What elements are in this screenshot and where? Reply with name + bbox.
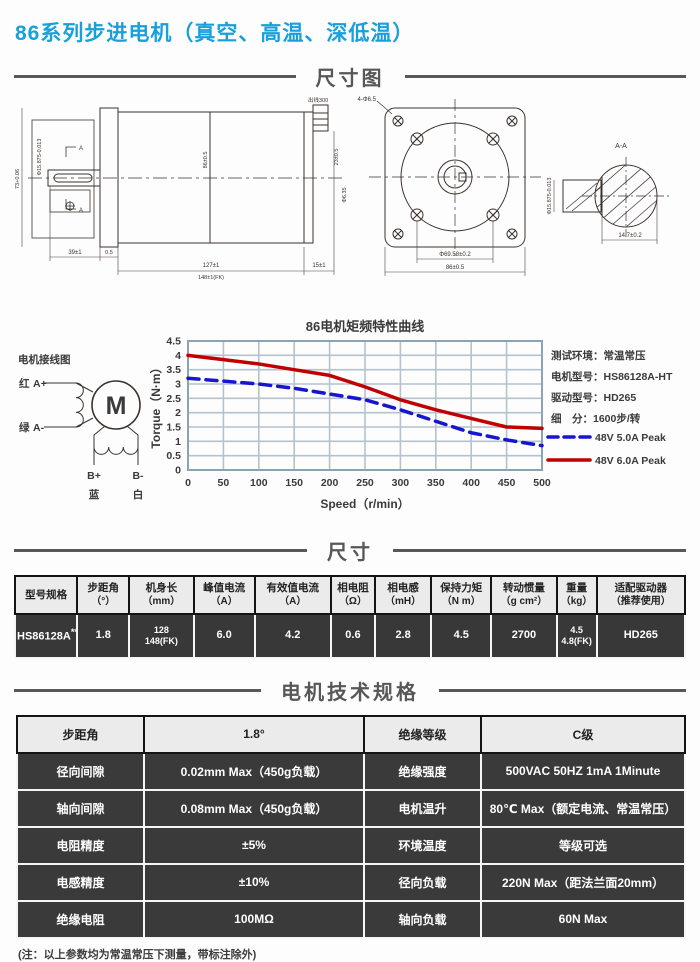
header-unit: （kg） (561, 596, 593, 607)
chart-info-line: 测试环境：常温常压 (551, 349, 646, 362)
x-tick-label: 350 (427, 477, 445, 489)
header-unit: （A） (279, 596, 306, 607)
y-tick-label: 0 (175, 465, 181, 477)
x-tick-label: 250 (356, 477, 374, 489)
dim-shaft-flat: 14.7±0.2 (618, 233, 642, 239)
chart-title: 86电机矩频特性曲线 (306, 319, 424, 334)
header-label: 机身长 (146, 582, 178, 594)
spec-label-cell: 步距角 (17, 716, 144, 753)
header-label: 转动惯量 (503, 582, 545, 594)
section-label: A-A (615, 143, 627, 150)
size-table: 型号规格 步距角（°） 机身长（mm） 峰值电流（A） 有效值电流（A） 相电阻… (14, 575, 686, 659)
header-unit: （N m） (442, 596, 481, 607)
spec-value-cell: ±5% (144, 827, 364, 864)
wire-green-label: 绿 (19, 421, 30, 434)
size-header-rms-current: 有效值电流（A） (255, 576, 331, 614)
header-label: 有效值电流 (267, 582, 320, 594)
section-view: A-A 14.7±0.2 Φ15.875-0.013 (547, 140, 679, 255)
page-title: 86系列步进电机（真空、高温、深低温） (0, 0, 700, 47)
spec-label-cell: 环境温度 (364, 827, 481, 864)
spec-value-cell: 80℃ Max（额定电流、常温常压） (481, 790, 685, 827)
motor-symbol: M (106, 392, 127, 420)
size-header-holding-torque: 保持力矩（N m） (431, 576, 491, 614)
header-label: 步距角 (87, 582, 119, 594)
divider-line (393, 549, 686, 552)
wire-exit-label: 出线300 (308, 96, 328, 104)
wire-red-label: 红 (19, 377, 30, 390)
size-header-driver: 适配驱动器（推荐使用） (597, 576, 685, 614)
divider-line (14, 689, 261, 692)
size-value-phase-resistance: 0.6 (331, 614, 375, 658)
section-title: 尺寸图 (316, 62, 385, 91)
size-value-peak-current: 6.0 (194, 614, 255, 658)
size-value-model: HS86128A** (15, 614, 77, 658)
dim-left-vertical: 73+0.06 (15, 169, 21, 189)
spec-value-cell: 500VAC 50HZ 1mA 1Minute (481, 753, 685, 790)
length-standard: 128 (131, 625, 191, 635)
dimension-drawing: 39±1 0.5 127±1 148±1(FK) 15±1 73+0.06 Φ1… (14, 95, 686, 313)
phase-a-plus-label: A+ (33, 378, 47, 390)
y-tick-label: 0.5 (166, 450, 181, 462)
header-unit: （mm） (143, 596, 181, 607)
dim-section-diameter: Φ15.875-0.013 (547, 178, 553, 215)
spec-value-cell: 220N Max（距法兰面20mm） (481, 864, 685, 901)
section-header-size: 尺寸 (14, 536, 686, 565)
side-view: 39±1 0.5 127±1 148±1(FK) 15±1 73+0.06 Φ1… (15, 96, 348, 281)
spec-value-cell: 60N Max (481, 901, 685, 938)
size-header-model: 型号规格 (15, 576, 77, 614)
x-tick-label: 300 (392, 477, 410, 489)
spec-value-cell: 100MΩ (144, 901, 364, 938)
size-value-holding-torque: 4.5 (431, 614, 491, 658)
dim-shaft-diameter: Φ15.875-0.013 (37, 139, 43, 176)
spec-row: 电阻精度 ±5% 环境温度 等级可选 (17, 827, 685, 864)
y-tick-label: 3.5 (166, 364, 181, 376)
section-title: 电机技术规格 (281, 676, 419, 705)
spec-label-cell: 轴向负载 (364, 901, 481, 938)
size-table-header-row: 型号规格 步距角（°） 机身长（mm） 峰值电流（A） 有效值电流（A） 相电阻… (15, 576, 685, 614)
legend-label: 48V 6.0A Peak (595, 455, 666, 467)
wire-blue-label: 蓝 (89, 488, 100, 501)
dim-rear-length: 15±1 (312, 263, 326, 269)
spec-row: 绝缘电阻 100MΩ 轴向负载 60N Max (17, 901, 685, 938)
section-title: 尺寸 (327, 536, 373, 565)
spec-label-cell: 电阻精度 (17, 827, 144, 864)
dim-body-vertical: 86±0.5 (203, 152, 209, 169)
header-unit: （推荐使用） (611, 596, 671, 607)
chart-info-line: 电机型号：HS86128A-HT (551, 370, 673, 383)
spec-value-cell: C级 (481, 716, 685, 753)
phase-a-minus-label: A- (33, 422, 45, 434)
dim-body-length: 127±1 (203, 263, 220, 269)
wire-white-label: 白 (133, 488, 144, 501)
section-header-dimension-diagram: 尺寸图 (14, 62, 686, 91)
size-header-phase-inductance: 相电感（mH） (375, 576, 431, 614)
y-tick-label: 4 (175, 350, 181, 362)
x-tick-label: 200 (321, 477, 339, 489)
spec-row: 径向间隙 0.02mm Max（450g负载） 绝缘强度 500VAC 50HZ… (17, 753, 685, 790)
weight-fk: 4.8(FK) (559, 636, 595, 646)
legend-label: 48V 5.0A Peak (595, 432, 666, 444)
spec-label-cell: 径向间隙 (17, 753, 144, 790)
wiring-title: 电机接线图 (18, 353, 71, 366)
header-unit: （g cm²） (501, 596, 548, 607)
dim-pilot-diameter: Φ69.58±0.2 (439, 252, 471, 258)
chart-plot-area: 00.511.522.533.544.505010015020025030035… (166, 336, 673, 490)
chart-info-line: 细 分：1600步/转 (551, 412, 641, 425)
x-tick-label: 50 (218, 477, 230, 489)
length-fk: 148(FK) (131, 636, 191, 646)
header-unit: （A） (210, 596, 237, 607)
size-value-rms-current: 4.2 (255, 614, 331, 658)
x-tick-label: 450 (498, 477, 516, 489)
section-header-spec: 电机技术规格 (14, 676, 686, 705)
phase-b-plus-label: B+ (87, 470, 101, 482)
size-value-step-angle: 1.8 (77, 614, 129, 658)
size-value-phase-inductance: 2.8 (375, 614, 431, 658)
y-tick-label: 4.5 (166, 336, 181, 348)
spec-label-cell: 电感精度 (17, 864, 144, 901)
dim-flange-width: 86±0.5 (446, 265, 465, 271)
size-value-rotor-inertia: 2700 (491, 614, 556, 658)
chart-x-axis-label: Speed（r/min） (320, 496, 409, 511)
size-value-body-length: 128148(FK) (129, 614, 193, 658)
size-header-step-angle: 步距角（°） (77, 576, 129, 614)
front-view: 4-Φ6.5 Φ69.58±0.2 86±0.5 (358, 97, 541, 276)
spec-label-cell: 轴向间隙 (17, 790, 144, 827)
header-unit: （Ω） (339, 596, 367, 607)
divider-line (14, 549, 307, 552)
torque-frequency-chart: 电机接线图 M 红 A+ 绿 A- B+ B- 蓝 白 86电机矩频特性曲 (14, 315, 686, 521)
header-label: 相电阻 (337, 582, 369, 594)
spec-value-cell: 0.02mm Max（450g负载） (144, 753, 364, 790)
size-header-peak-current: 峰值电流（A） (194, 576, 255, 614)
size-value-driver: HD265 (597, 614, 685, 658)
spec-value-cell: 0.08mm Max（450g负载） (144, 790, 364, 827)
section-mark-a-top: A (79, 146, 83, 152)
size-table-data-row: HS86128A** 1.8 128148(FK) 6.0 4.2 0.6 2.… (15, 614, 685, 658)
footer-note: (注：以上参数均为常温常压下测量，带标注除外) (18, 946, 700, 962)
spec-value-cell: 等级可选 (481, 827, 685, 864)
spec-table: 步距角 1.8° 绝缘等级 C级 径向间隙 0.02mm Max（450g负载）… (16, 715, 686, 939)
spec-row: 轴向间隙 0.08mm Max（450g负载） 电机温升 80℃ Max（额定电… (17, 790, 685, 827)
spec-sheet-page: 86系列步进电机（真空、高温、深低温） 尺寸图 (0, 0, 700, 957)
divider-line (405, 75, 687, 78)
spec-label-cell: 电机温升 (364, 790, 481, 827)
dim-rear-vertical-2: Φ6.35 (342, 187, 348, 202)
spec-label-cell: 绝缘强度 (364, 753, 481, 790)
x-tick-label: 500 (533, 477, 551, 489)
spec-label-cell: 绝缘电阻 (17, 901, 144, 938)
size-header-rotor-inertia: 转动惯量（g cm²） (491, 576, 556, 614)
header-unit: （mH） (385, 596, 421, 607)
y-tick-label: 1 (175, 436, 181, 448)
size-value-weight: 4.54.8(FK) (557, 614, 597, 658)
section-mark-a-bottom: A (79, 208, 83, 214)
y-tick-label: 3 (175, 379, 181, 391)
spec-label-cell: 绝缘等级 (364, 716, 481, 753)
weight-standard: 4.5 (559, 625, 595, 635)
y-tick-label: 2.5 (166, 393, 181, 405)
dim-shaft-length: 39±1 (68, 250, 82, 256)
spec-label-cell: 径向负载 (364, 864, 481, 901)
chart-y-axis-label: Torque（N·m） (148, 361, 163, 448)
divider-line (439, 689, 686, 692)
model-superscript: ** (71, 627, 78, 637)
phase-b-minus-label: B- (132, 470, 144, 482)
header-label: 相电感 (387, 582, 419, 594)
dim-body-length-fk: 148±1(FK) (198, 275, 224, 281)
size-header-weight: 重量（kg） (557, 576, 597, 614)
x-tick-label: 0 (185, 477, 191, 489)
header-label: 适配驱动器 (615, 582, 668, 594)
header-unit: （°） (91, 596, 115, 607)
spec-row: 电感精度 ±10% 径向负载 220N Max（距法兰面20mm） (17, 864, 685, 901)
spec-value-cell: ±10% (144, 864, 364, 901)
x-tick-label: 150 (285, 477, 303, 489)
model-value: HS86128A (17, 631, 71, 643)
motor-wiring-diagram: 电机接线图 M 红 A+ 绿 A- B+ B- 蓝 白 (18, 353, 144, 501)
header-label: 保持力矩 (440, 582, 482, 594)
spec-value-cell: 1.8° (144, 716, 364, 753)
mounting-hole-label: 4-Φ6.5 (358, 97, 377, 103)
dim-rear-vertical-1: 23±0.5 (334, 149, 340, 166)
x-tick-label: 100 (250, 477, 268, 489)
header-label: 重量 (566, 582, 587, 594)
dim-gap: 0.5 (105, 250, 113, 256)
size-header-phase-resistance: 相电阻（Ω） (331, 576, 375, 614)
header-label: 峰值电流 (203, 582, 245, 594)
divider-line (14, 75, 296, 78)
x-tick-label: 400 (462, 477, 480, 489)
y-tick-label: 2 (175, 407, 181, 419)
header-label: 型号规格 (25, 589, 67, 601)
y-tick-label: 1.5 (166, 422, 181, 434)
spec-row: 步距角 1.8° 绝缘等级 C级 (17, 716, 685, 753)
chart-info-line: 驱动型号：HD265 (551, 391, 636, 404)
size-header-body-length: 机身长（mm） (129, 576, 193, 614)
